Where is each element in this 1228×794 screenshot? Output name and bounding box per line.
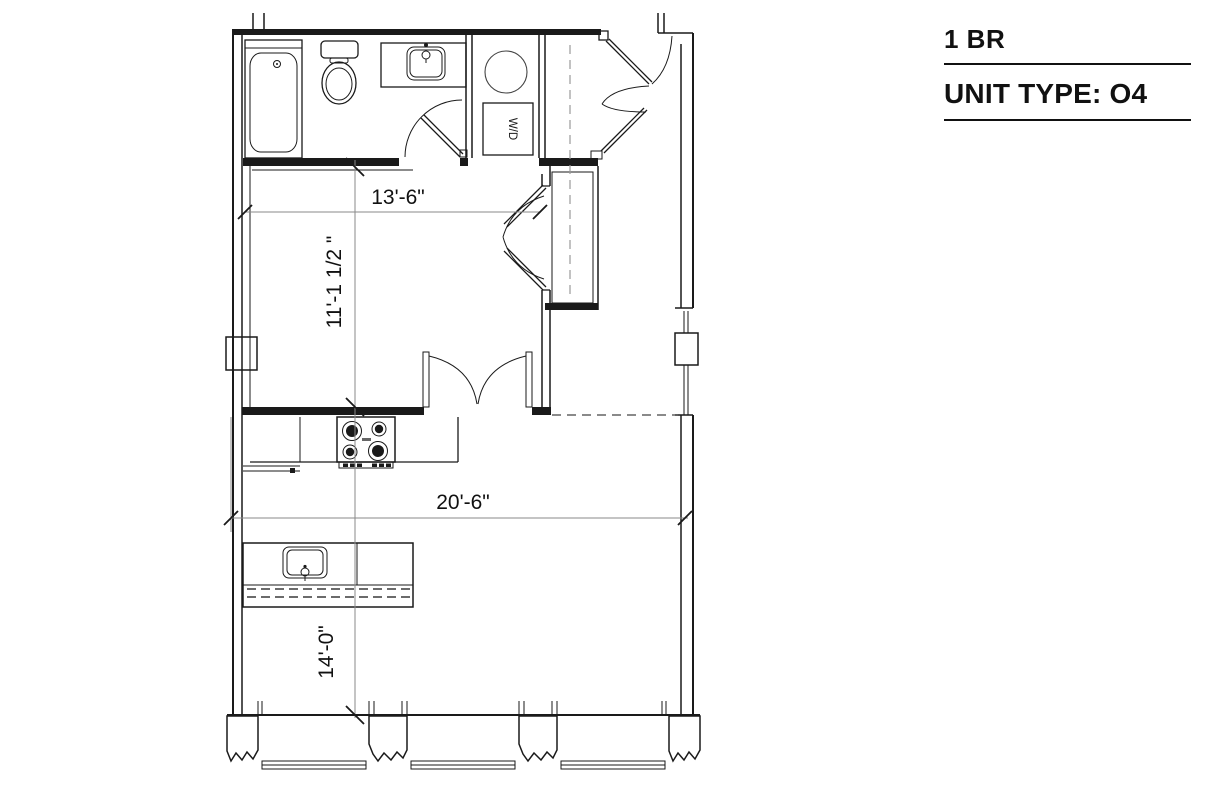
entry-jamb-bottom <box>591 151 602 159</box>
bathroom-south-wall <box>243 158 399 166</box>
toilet <box>321 41 358 104</box>
bathroom-door-jamb <box>460 158 468 166</box>
masonry-pier <box>519 716 557 761</box>
closet-door-jamb-caps <box>542 186 550 290</box>
entry-door-cusp-arcs <box>602 86 649 112</box>
vanity-basin <box>407 47 445 80</box>
bathtub <box>245 40 302 158</box>
stove-center-mark <box>362 438 371 441</box>
french-door-swings <box>429 356 526 404</box>
counter-edge <box>250 417 458 462</box>
closet-south-wall <box>545 303 598 310</box>
toilet-bowl-inner <box>326 68 352 100</box>
masonry-pier <box>369 716 407 761</box>
island-counter-lines <box>243 543 413 585</box>
kitchen-island <box>243 543 413 607</box>
burner-center <box>346 425 358 437</box>
entry-door-leaf-2 <box>601 108 647 153</box>
burner-center <box>372 445 384 457</box>
burner-center <box>375 425 383 433</box>
french-door-leaf-left <box>423 352 429 407</box>
vanity-sink <box>381 43 466 87</box>
bathroom-door-leaf <box>421 115 463 157</box>
vanity-basin-inner <box>410 50 442 77</box>
vanity-faucet-dot <box>424 43 428 47</box>
bedroom-south-wall-left <box>242 407 424 415</box>
title-block: 1 BR UNIT TYPE: O4 <box>944 26 1191 136</box>
laundry-closet: W/D <box>483 51 533 155</box>
east-window-glass <box>684 311 688 415</box>
east-window-pier <box>675 333 698 365</box>
masonry-pier <box>227 716 258 761</box>
french-door-leaf-right <box>526 352 532 407</box>
closet-door-arcs <box>503 196 544 279</box>
floor-plan-page: W/D <box>0 0 1228 794</box>
north-wall <box>234 29 601 35</box>
island-sink-inner <box>287 550 323 575</box>
bathtub-basin <box>250 53 297 152</box>
dim-text-bedroom-width: 13'-6" <box>371 186 425 209</box>
south-window-wall <box>227 701 700 769</box>
dim-text-living-depth: 14'-0" <box>315 625 338 679</box>
closet-north-wall <box>539 158 598 166</box>
bathroom-door <box>405 100 467 157</box>
unit-size-label: 1 BR <box>944 26 1191 63</box>
toilet-tank <box>321 41 358 58</box>
interior-walls <box>242 35 598 415</box>
dim-text-bedroom-depth: 11'-1 1/2 " <box>323 236 346 329</box>
dim-ticks-horizontal <box>224 205 692 525</box>
masonry-pier <box>669 716 700 761</box>
laundry-closet-west-wall <box>466 35 472 158</box>
burner-center <box>346 448 354 456</box>
island-faucet-dot <box>303 565 306 568</box>
closet-interior <box>552 172 593 303</box>
window-jamb-stubs <box>258 701 666 715</box>
stove-knobs <box>343 464 391 468</box>
bathtub-surround <box>245 40 302 158</box>
title-rule-2 <box>944 119 1191 121</box>
water-heater <box>485 51 527 93</box>
east-window <box>675 308 698 415</box>
stove <box>337 417 395 468</box>
french-doors <box>423 352 532 407</box>
entry-door-swing <box>652 36 672 84</box>
unit-type-label: UNIT TYPE: O4 <box>944 80 1191 119</box>
bathroom-door-swing <box>405 100 462 157</box>
vanity-faucet <box>422 51 430 59</box>
bedroom-south-wall-right <box>532 407 551 415</box>
bathtub-drain-dot <box>276 63 278 65</box>
north-wall-stub-right <box>658 13 693 33</box>
laundry-closet-east-wall <box>539 35 545 158</box>
dim-text-living-width: 20'-6" <box>436 491 490 514</box>
entry-doors <box>591 36 672 159</box>
entry-door-leaf-1 <box>606 39 652 84</box>
island-overhang-dashed <box>247 589 410 597</box>
washer-dryer-label: W/D <box>506 118 518 140</box>
cabinet-handle <box>290 468 295 473</box>
exterior-walls <box>227 13 700 715</box>
island-sink <box>283 547 327 578</box>
north-wall-stub-left <box>253 13 264 29</box>
bedroom-closet-doors <box>503 185 546 290</box>
title-rule-1 <box>944 63 1191 65</box>
